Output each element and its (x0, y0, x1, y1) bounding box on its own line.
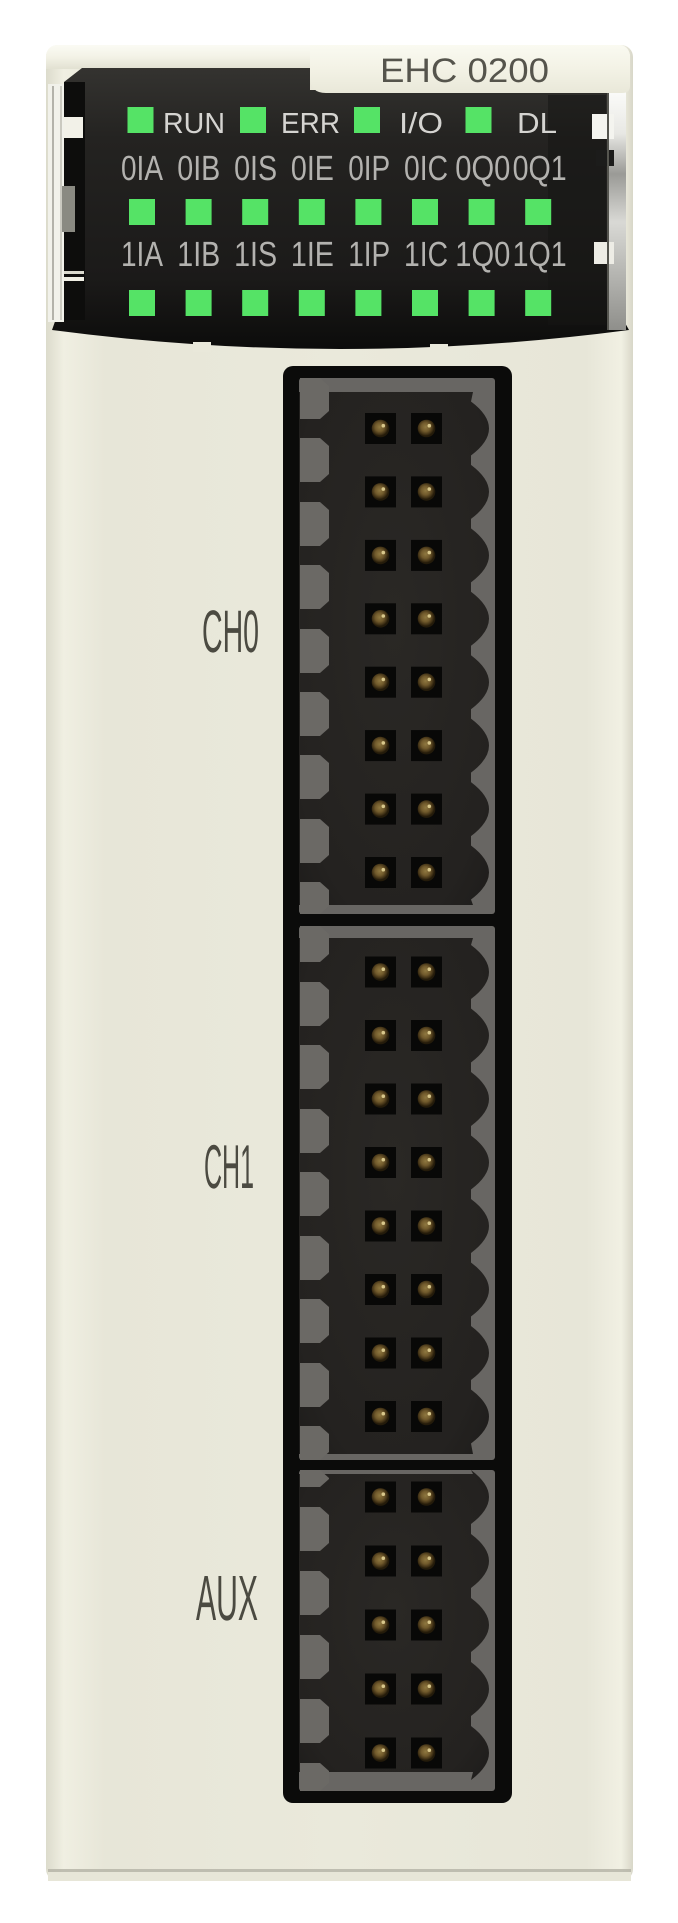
svg-text:1IP: 1IP (348, 235, 390, 274)
svg-text:0IE: 0IE (291, 149, 334, 188)
svg-text:1IS: 1IS (234, 235, 277, 274)
svg-text:1IC: 1IC (404, 235, 448, 274)
svg-text:1Q0: 1Q0 (455, 235, 510, 274)
svg-text:1IB: 1IB (177, 235, 220, 274)
svg-text:RUN: RUN (163, 108, 225, 140)
svg-text:1IA: 1IA (121, 235, 164, 274)
svg-text:CH0: CH0 (202, 598, 259, 665)
svg-text:0IS: 0IS (234, 149, 277, 188)
svg-text:1Q1: 1Q1 (513, 235, 567, 274)
svg-text:0Q1: 0Q1 (513, 149, 567, 188)
svg-text:0IA: 0IA (121, 149, 164, 188)
svg-text:0IC: 0IC (404, 149, 448, 188)
svg-text:1IE: 1IE (291, 235, 334, 274)
svg-text:CH1: CH1 (204, 1133, 254, 1202)
svg-text:EHC 0200: EHC 0200 (380, 52, 549, 90)
svg-text:0IB: 0IB (177, 149, 220, 188)
svg-text:0Q0: 0Q0 (455, 149, 510, 188)
svg-text:AUX: AUX (196, 1562, 258, 1634)
svg-text:I/O: I/O (399, 108, 443, 140)
svg-text:ERR: ERR (281, 108, 340, 140)
svg-text:0IP: 0IP (348, 149, 390, 188)
svg-text:DL: DL (517, 108, 557, 140)
